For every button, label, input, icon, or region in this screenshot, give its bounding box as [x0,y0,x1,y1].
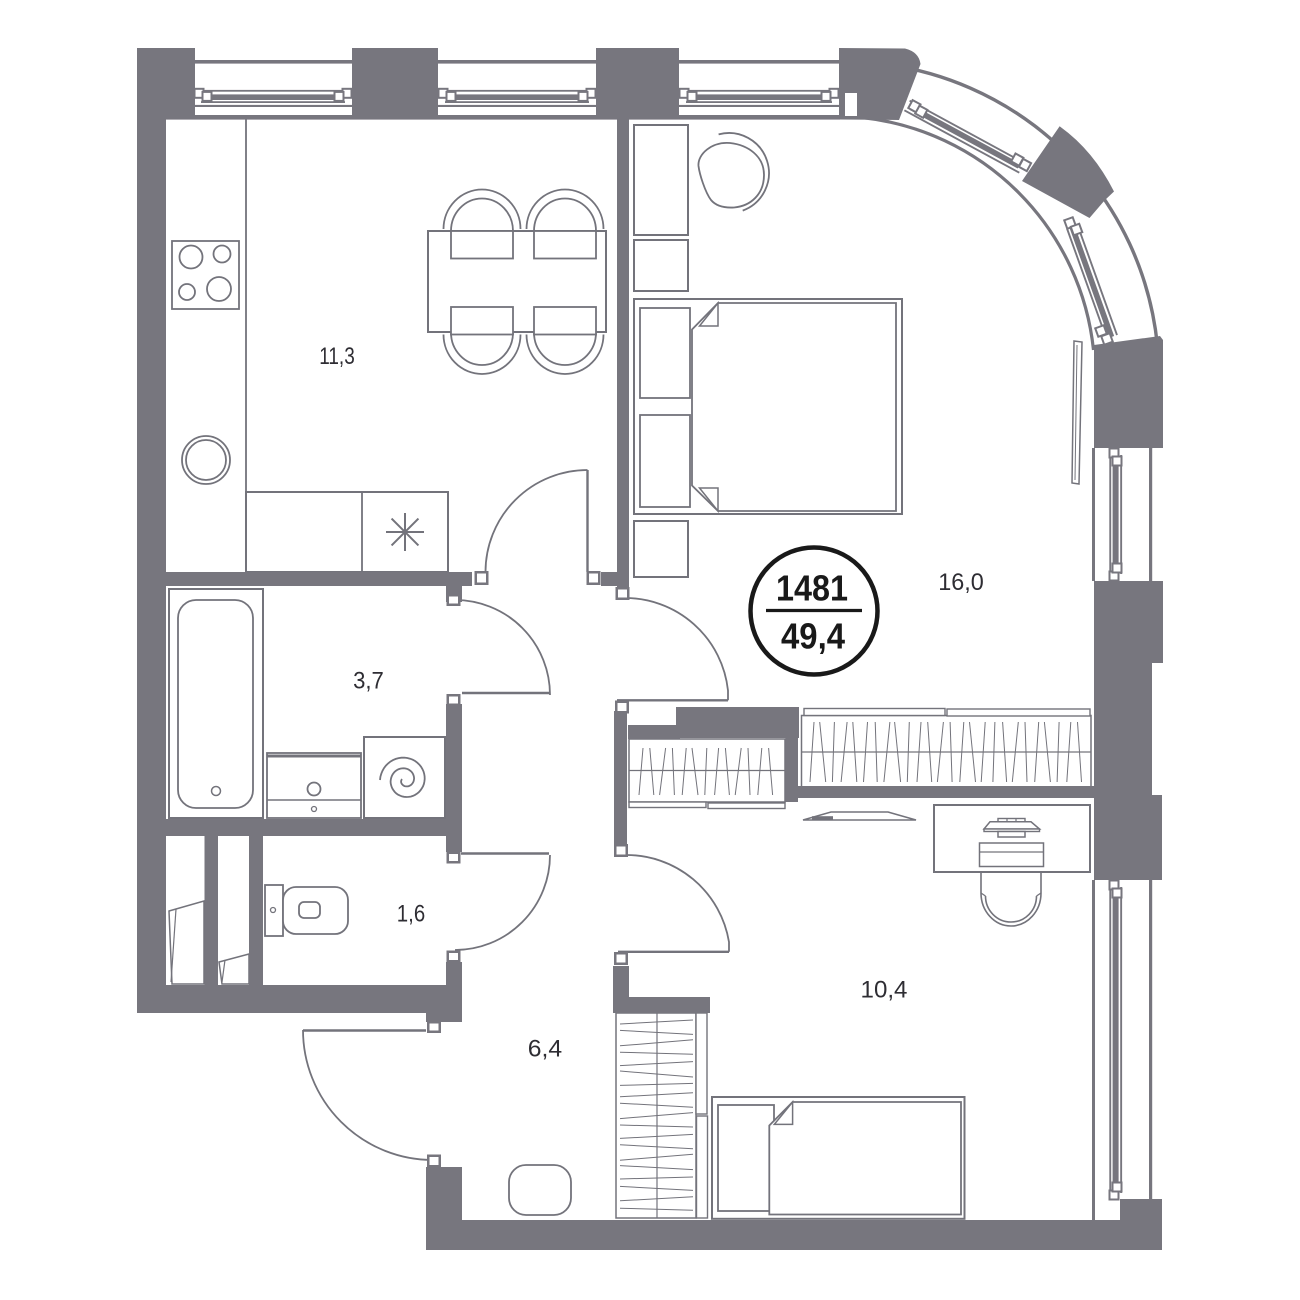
svg-text:49,4: 49,4 [781,616,845,657]
svg-text:3,7: 3,7 [353,668,384,695]
svg-text:11,3: 11,3 [319,343,355,370]
svg-text:6,4: 6,4 [528,1036,562,1063]
svg-text:10,4: 10,4 [861,977,908,1004]
svg-text:1,6: 1,6 [397,901,425,928]
svg-text:16,0: 16,0 [938,569,984,596]
svg-text:1481: 1481 [776,568,848,609]
